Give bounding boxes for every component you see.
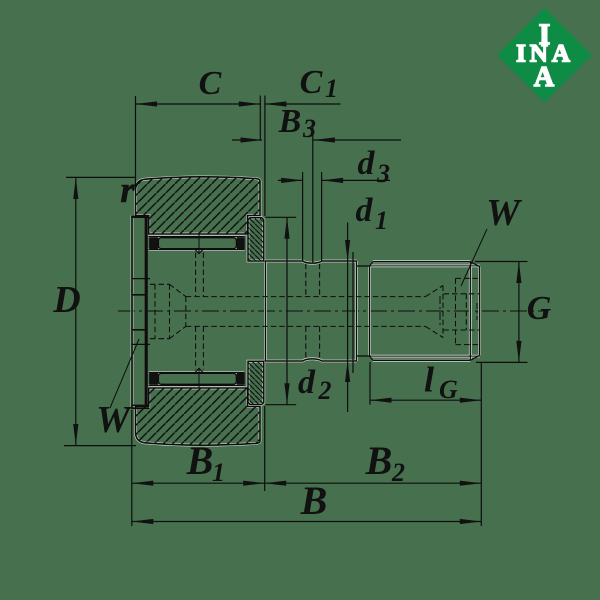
svg-text:B: B (278, 103, 302, 140)
svg-text:d: d (356, 192, 374, 229)
svg-text:W: W (96, 399, 133, 441)
svg-text:r: r (120, 170, 135, 211)
svg-text:B: B (186, 438, 214, 483)
svg-text:W: W (486, 192, 523, 234)
svg-text:3: 3 (376, 159, 390, 188)
svg-text:B: B (300, 478, 328, 523)
svg-text:1: 1 (375, 206, 388, 235)
svg-text:d: d (358, 145, 376, 182)
svg-text:G: G (439, 375, 458, 404)
svg-text:3: 3 (302, 114, 316, 143)
svg-text:C: C (199, 65, 222, 102)
svg-text:1: 1 (325, 74, 338, 103)
svg-text:A: A (534, 62, 555, 93)
svg-text:G: G (527, 290, 552, 327)
svg-text:2: 2 (391, 458, 405, 487)
svg-text:D: D (52, 279, 80, 321)
svg-text:C: C (300, 64, 323, 101)
svg-text:B: B (365, 438, 393, 483)
svg-text:l: l (424, 360, 434, 400)
svg-text:2: 2 (318, 376, 332, 405)
svg-text:d: d (298, 364, 316, 401)
svg-text:1: 1 (212, 458, 225, 487)
